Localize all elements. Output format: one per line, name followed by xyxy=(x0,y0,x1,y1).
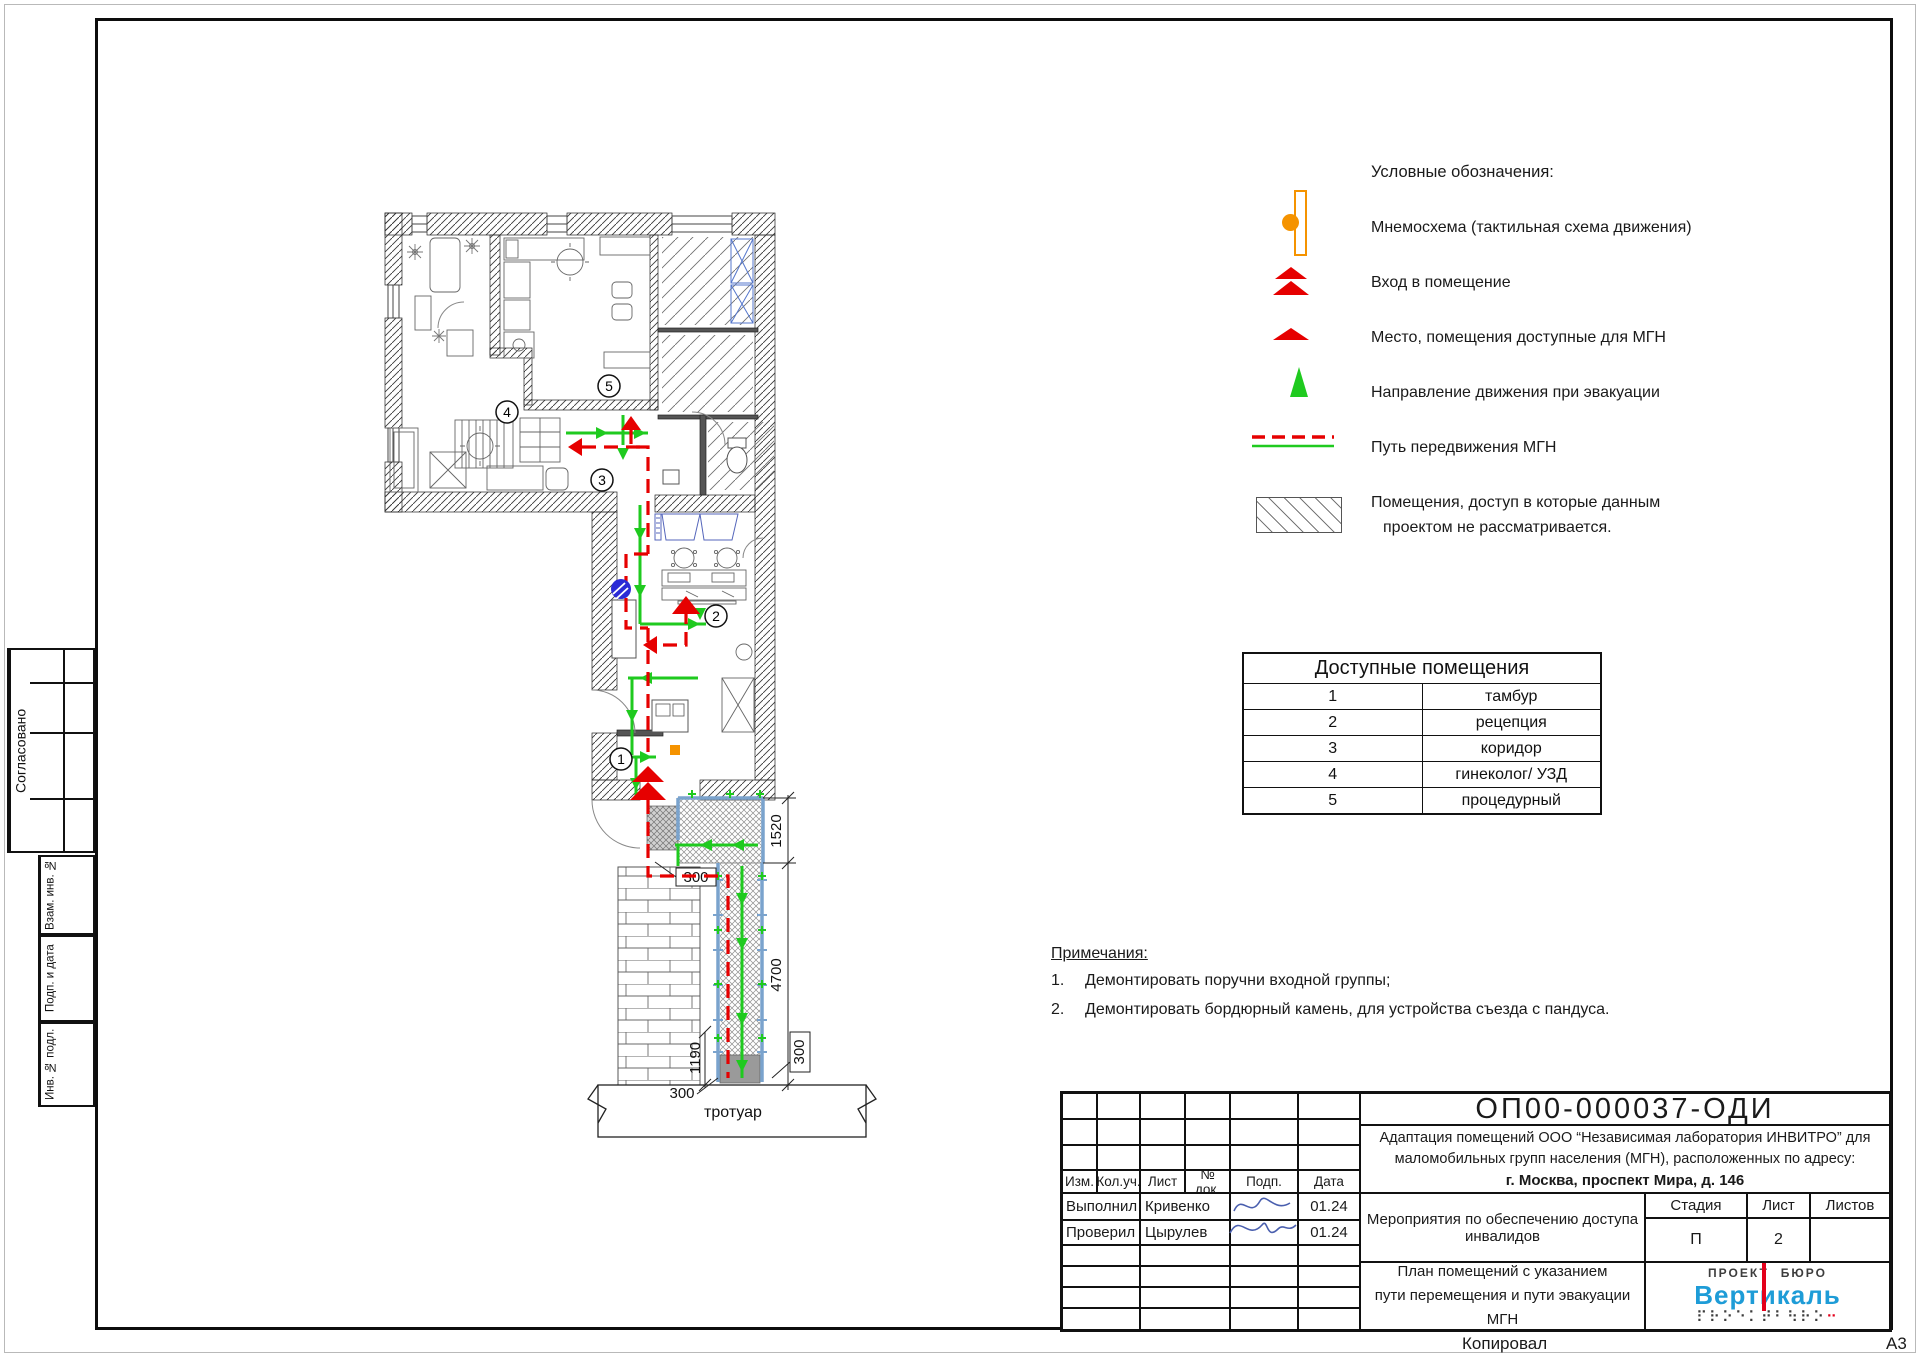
room-number: 5 xyxy=(1243,788,1422,815)
notes-block: Примечания: 1. Демонтировать поручни вхо… xyxy=(1051,945,1611,1030)
dim-300-bottom: 300 xyxy=(669,1085,694,1102)
vzam-inv-stamp: Взам. инв. № xyxy=(38,855,95,935)
floor-plan: 1520 300 4700 1190 300 300 тротуар xyxy=(365,195,905,1180)
dim-4700: 4700 xyxy=(768,958,785,991)
table-row: 1 тамбур xyxy=(1243,684,1601,710)
logo-cell: ПРОЕКТ БЮРО Вертикаль ⠏⠗⠕⠑⠅⠞⠃⠳⠗⠕⠒ xyxy=(1645,1262,1890,1330)
project-description: Адаптация помещений ООО “Независимая лаб… xyxy=(1360,1125,1890,1193)
name-tsyrulev: Цырулев xyxy=(1140,1220,1230,1245)
room-name: гинеколог/ УЗД xyxy=(1422,762,1601,788)
mnemoscheme-icon xyxy=(1282,190,1312,254)
legend-item-label: Помещения, доступ в которые данным xyxy=(1371,494,1660,512)
col-list: Лист xyxy=(1140,1170,1185,1193)
room-badge-1: 1 xyxy=(617,751,625,767)
logo-name: Вертикаль xyxy=(1694,1282,1840,1308)
legend-title: Условные обозначения: xyxy=(1371,163,1554,182)
name-krivenko: Кривенко xyxy=(1140,1193,1230,1220)
vertikal-logo: ПРОЕКТ БЮРО Вертикаль ⠏⠗⠕⠑⠅⠞⠃⠳⠗⠕⠒ xyxy=(1694,1267,1840,1325)
dim-300-right: 300 xyxy=(791,1039,808,1064)
room-number: 1 xyxy=(1243,684,1422,710)
podp-data-stamp: Подп. и дата xyxy=(38,935,95,1022)
outdoor-area xyxy=(588,798,876,1137)
logo-proekt: ПРОЕКТ xyxy=(1708,1267,1769,1279)
inv-podl-label: Инв. № подл. xyxy=(40,1024,60,1105)
legend-item-label: Путь передвижения МГН xyxy=(1371,439,1556,457)
evacuation-direction-icon xyxy=(1288,366,1310,400)
accessible-rooms-table: Доступные помещения 1 тамбур 2 рецепция … xyxy=(1242,652,1602,815)
table-row: 5 процедурный xyxy=(1243,788,1601,815)
excluded-rooms-icon xyxy=(1256,497,1342,533)
room-name: процедурный xyxy=(1422,788,1601,815)
stage-label: Стадия xyxy=(1645,1193,1747,1218)
legend-item-label2: проектом не рассматривается. xyxy=(1383,519,1612,537)
sheets-label: Листов xyxy=(1810,1193,1890,1218)
room-number: 2 xyxy=(1243,710,1422,736)
logo-braille: ⠏⠗⠕⠑⠅⠞⠃⠳⠗⠕⠒ xyxy=(1696,1310,1839,1325)
ramp-exit-pad xyxy=(720,1055,760,1083)
col-ndok: № док. xyxy=(1185,1170,1230,1193)
project-line3: г. Москва, проспект Мира, д. 146 xyxy=(1506,1170,1744,1191)
sheets-value xyxy=(1810,1218,1890,1262)
room-number: 4 xyxy=(1243,762,1422,788)
date-2: 01.24 xyxy=(1298,1220,1360,1245)
furniture-room4 xyxy=(390,238,568,492)
role-checked: Проверил xyxy=(1062,1220,1140,1245)
logo-red-bar xyxy=(1762,1263,1766,1311)
date-1: 01.24 xyxy=(1298,1193,1360,1220)
room-name: коридор xyxy=(1422,736,1601,762)
note-number: 2. xyxy=(1051,1001,1085,1019)
blue-location-symbol xyxy=(611,579,631,599)
stamp-grid-line xyxy=(30,732,93,734)
legend-item-label: Направление движения при эвакуации xyxy=(1371,384,1660,402)
vzam-inv-label: Взам. инв. № xyxy=(40,857,60,933)
inv-podl-stamp: Инв. № подл. xyxy=(38,1022,95,1107)
mnemoscheme-marker xyxy=(670,745,680,755)
note-item: 1. Демонтировать поручни входной группы; xyxy=(1051,972,1611,990)
room-badge-4: 4 xyxy=(503,404,511,420)
note-text: Демонтировать бордюрный камень, для устр… xyxy=(1085,1001,1609,1019)
approved-stamp: Согласовано xyxy=(7,648,95,853)
format-label: А3 xyxy=(1886,1334,1907,1354)
project-line2: маломобильных групп населения (МГН), рас… xyxy=(1395,1149,1856,1170)
sidewalk-label: тротуар xyxy=(704,1104,762,1121)
ramp-run xyxy=(720,863,760,1055)
stamp-grid-line xyxy=(30,682,93,684)
stamp-grid-line xyxy=(30,798,93,800)
entrance-icon xyxy=(1272,266,1310,298)
stamp-grid-line xyxy=(63,650,65,851)
logo-buro: БЮРО xyxy=(1781,1267,1827,1279)
approved-stamp-label: Согласовано xyxy=(9,650,30,851)
copied-label: Копировал xyxy=(1462,1334,1547,1354)
room-name: тамбур xyxy=(1422,684,1601,710)
podp-data-label: Подп. и дата xyxy=(40,937,60,1020)
col-koluch: Кол.уч. xyxy=(1097,1170,1140,1193)
note-item: 2. Демонтировать бордюрный камень, для у… xyxy=(1051,1001,1611,1019)
col-podp: Подп. xyxy=(1230,1170,1298,1193)
col-izm: Изм. xyxy=(1062,1170,1097,1193)
notes-title: Примечания: xyxy=(1051,945,1611,963)
dim-1190: 1190 xyxy=(687,1042,704,1074)
title-block: Изм. Кол.уч. Лист № док. Подп. Дата Выпо… xyxy=(1062,1093,1890,1330)
legend-item-label: Вход в помещение xyxy=(1371,274,1511,292)
drawing-sheet: { "colors": { "path_red": "#e60000", "pa… xyxy=(0,0,1920,1357)
section-title: Мероприятия по обеспечению доступа инвал… xyxy=(1360,1193,1645,1262)
room-badge-3: 3 xyxy=(598,472,606,488)
accessible-place-icon xyxy=(1272,326,1310,342)
table-row: 4 гинеколог/ УЗД xyxy=(1243,762,1601,788)
table-row: 3 коридор xyxy=(1243,736,1601,762)
ramp-landing xyxy=(678,798,763,863)
legend-item-label: Место, помещения доступные для МГН xyxy=(1371,329,1666,347)
sheet-value: 2 xyxy=(1747,1218,1810,1262)
role-performed: Выполнил xyxy=(1062,1193,1140,1220)
note-number: 1. xyxy=(1051,972,1085,990)
legend-item-label: Мнемосхема (тактильная схема движения) xyxy=(1371,219,1692,237)
room-badge-2: 2 xyxy=(712,608,720,624)
col-data: Дата xyxy=(1298,1170,1360,1193)
drawing-title: План помещений с указанием пути перемеще… xyxy=(1360,1262,1645,1330)
table-row: 2 рецепция xyxy=(1243,710,1601,736)
note-text: Демонтировать поручни входной группы; xyxy=(1085,972,1391,990)
room-badge-5: 5 xyxy=(605,378,613,394)
rooms-table-title: Доступные помещения xyxy=(1243,653,1601,684)
stage-value: П xyxy=(1645,1218,1747,1262)
project-line1: Адаптация помещений ООО “Независимая лаб… xyxy=(1380,1128,1871,1149)
dim-1520: 1520 xyxy=(768,814,785,847)
mgn-path-icon xyxy=(1250,433,1336,451)
doc-number: ОП00-000037-ОДИ xyxy=(1360,1093,1890,1125)
room-number: 3 xyxy=(1243,736,1422,762)
sheet-label: Лист xyxy=(1747,1193,1810,1218)
room-name: рецепция xyxy=(1422,710,1601,736)
